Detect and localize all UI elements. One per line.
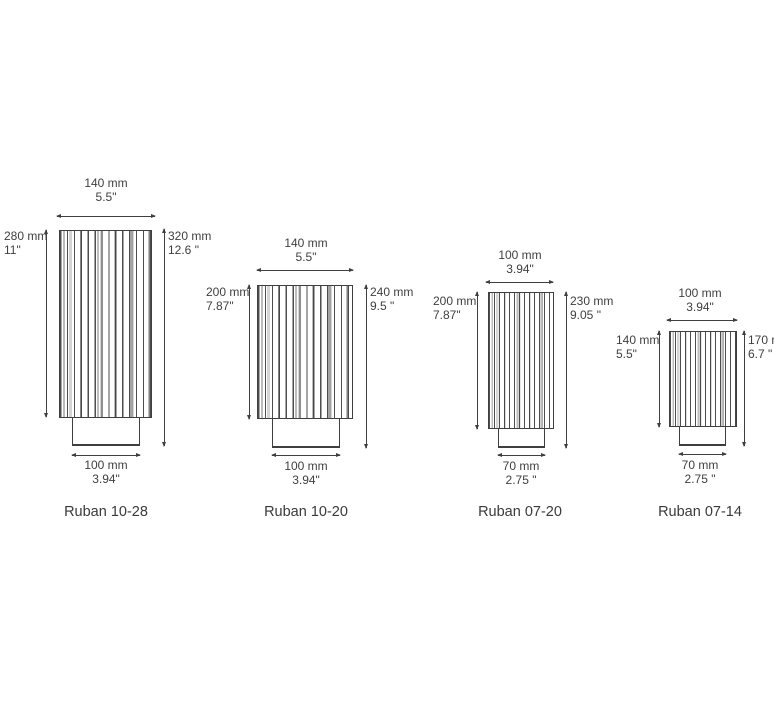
dim-line-top-width: [486, 282, 553, 283]
dim-right-height-in: 9.05 ": [570, 308, 620, 322]
dim-top-width-mm: 100 mm: [650, 286, 750, 300]
dim-line-right-height: [164, 229, 165, 446]
dim-left-height: 200 mm 7.87": [433, 294, 475, 322]
dim-left-height: 140 mm 5.5": [616, 333, 658, 361]
dim-line-left-height: [477, 292, 478, 429]
dim-line-top-width: [57, 216, 155, 217]
lamp-base: [272, 418, 340, 448]
product-name: Ruban 07-14: [640, 504, 760, 521]
dim-right-height-mm: 170 m: [748, 333, 774, 347]
dim-top-width: 140 mm 5.5": [256, 236, 356, 264]
dim-top-width-mm: 100 mm: [470, 248, 570, 262]
dim-line-top-width: [667, 320, 737, 321]
dim-bottom-width-in: 2.75 ": [481, 473, 561, 487]
dim-right-height-in: 6.7 ": [748, 347, 774, 361]
lamp-shade: [488, 292, 554, 429]
product-name: Ruban 10-20: [246, 504, 366, 521]
dim-top-width-in: 3.94": [650, 300, 750, 314]
dim-line-right-height: [566, 292, 567, 448]
dim-top-width-in: 5.5": [56, 190, 156, 204]
dim-left-height-in: 7.87": [206, 299, 250, 313]
dim-top-width: 140 mm 5.5": [56, 176, 156, 204]
dim-left-height-mm: 280 mm: [4, 229, 48, 243]
dim-right-height-mm: 240 mm: [370, 285, 420, 299]
product-name: Ruban 10-28: [46, 504, 166, 521]
lamp-base: [72, 417, 140, 446]
dim-top-width-mm: 140 mm: [56, 176, 156, 190]
dim-bottom-width: 100 mm 3.94": [266, 459, 346, 487]
dim-line-right-height: [366, 285, 367, 448]
dim-bottom-width: 70 mm 2.75 ": [481, 459, 561, 487]
dim-line-right-height: [744, 331, 745, 446]
lamp-shade: [257, 285, 353, 419]
dim-left-height-mm: 200 mm: [433, 294, 475, 308]
dim-bottom-width-mm: 70 mm: [660, 458, 740, 472]
dim-top-width-mm: 140 mm: [256, 236, 356, 250]
dim-bottom-width-mm: 100 mm: [266, 459, 346, 473]
dim-top-width: 100 mm 3.94": [470, 248, 570, 276]
dim-right-height-mm: 230 mm: [570, 294, 620, 308]
dim-right-height: 170 m 6.7 ": [748, 333, 774, 361]
dim-left-height-in: 7.87": [433, 308, 475, 322]
dim-line-bottom-width: [272, 455, 340, 456]
dim-line-top-width: [257, 270, 353, 271]
dim-left-height-mm: 140 mm: [616, 333, 658, 347]
dim-line-bottom-width: [498, 455, 545, 456]
dim-left-height-mm: 200 mm: [206, 285, 250, 299]
dim-top-width-in: 3.94": [470, 262, 570, 276]
dim-right-height-mm: 320 mm: [168, 229, 218, 243]
dim-left-height: 200 mm 7.87": [206, 285, 250, 313]
dim-right-height: 240 mm 9.5 ": [370, 285, 420, 313]
dim-right-height: 230 mm 9.05 ": [570, 294, 620, 322]
dim-left-height-in: 5.5": [616, 347, 658, 361]
lamp-shade: [59, 230, 152, 418]
dim-line-bottom-width: [679, 454, 726, 455]
dim-bottom-width-mm: 70 mm: [481, 459, 561, 473]
dim-right-height-in: 9.5 ": [370, 299, 420, 313]
dim-line-left-height: [46, 230, 47, 417]
lamp-base: [679, 426, 726, 446]
dim-bottom-width: 70 mm 2.75 ": [660, 458, 740, 486]
dim-right-height: 320 mm 12.6 ": [168, 229, 218, 257]
dim-right-height-in: 12.6 ": [168, 243, 218, 257]
lamp-shade: [669, 331, 737, 427]
dim-left-height: 280 mm 11": [4, 229, 48, 257]
dim-bottom-width-in: 3.94": [266, 473, 346, 487]
dim-bottom-width-in: 3.94": [66, 472, 146, 486]
lamp-base: [498, 428, 545, 448]
dim-left-height-in: 11": [4, 243, 48, 257]
product-name: Ruban 07-20: [460, 504, 580, 521]
dim-top-width: 100 mm 3.94": [650, 286, 750, 314]
dimension-diagram: 140 mm 5.5" 280 mm 11" 320 mm 12.6 " 100…: [0, 0, 774, 705]
dim-top-width-in: 5.5": [256, 250, 356, 264]
dim-line-left-height: [249, 285, 250, 419]
dim-bottom-width-mm: 100 mm: [66, 458, 146, 472]
dim-line-left-height: [659, 331, 660, 427]
dim-bottom-width-in: 2.75 ": [660, 472, 740, 486]
dim-bottom-width: 100 mm 3.94": [66, 458, 146, 486]
dim-line-bottom-width: [72, 455, 140, 456]
